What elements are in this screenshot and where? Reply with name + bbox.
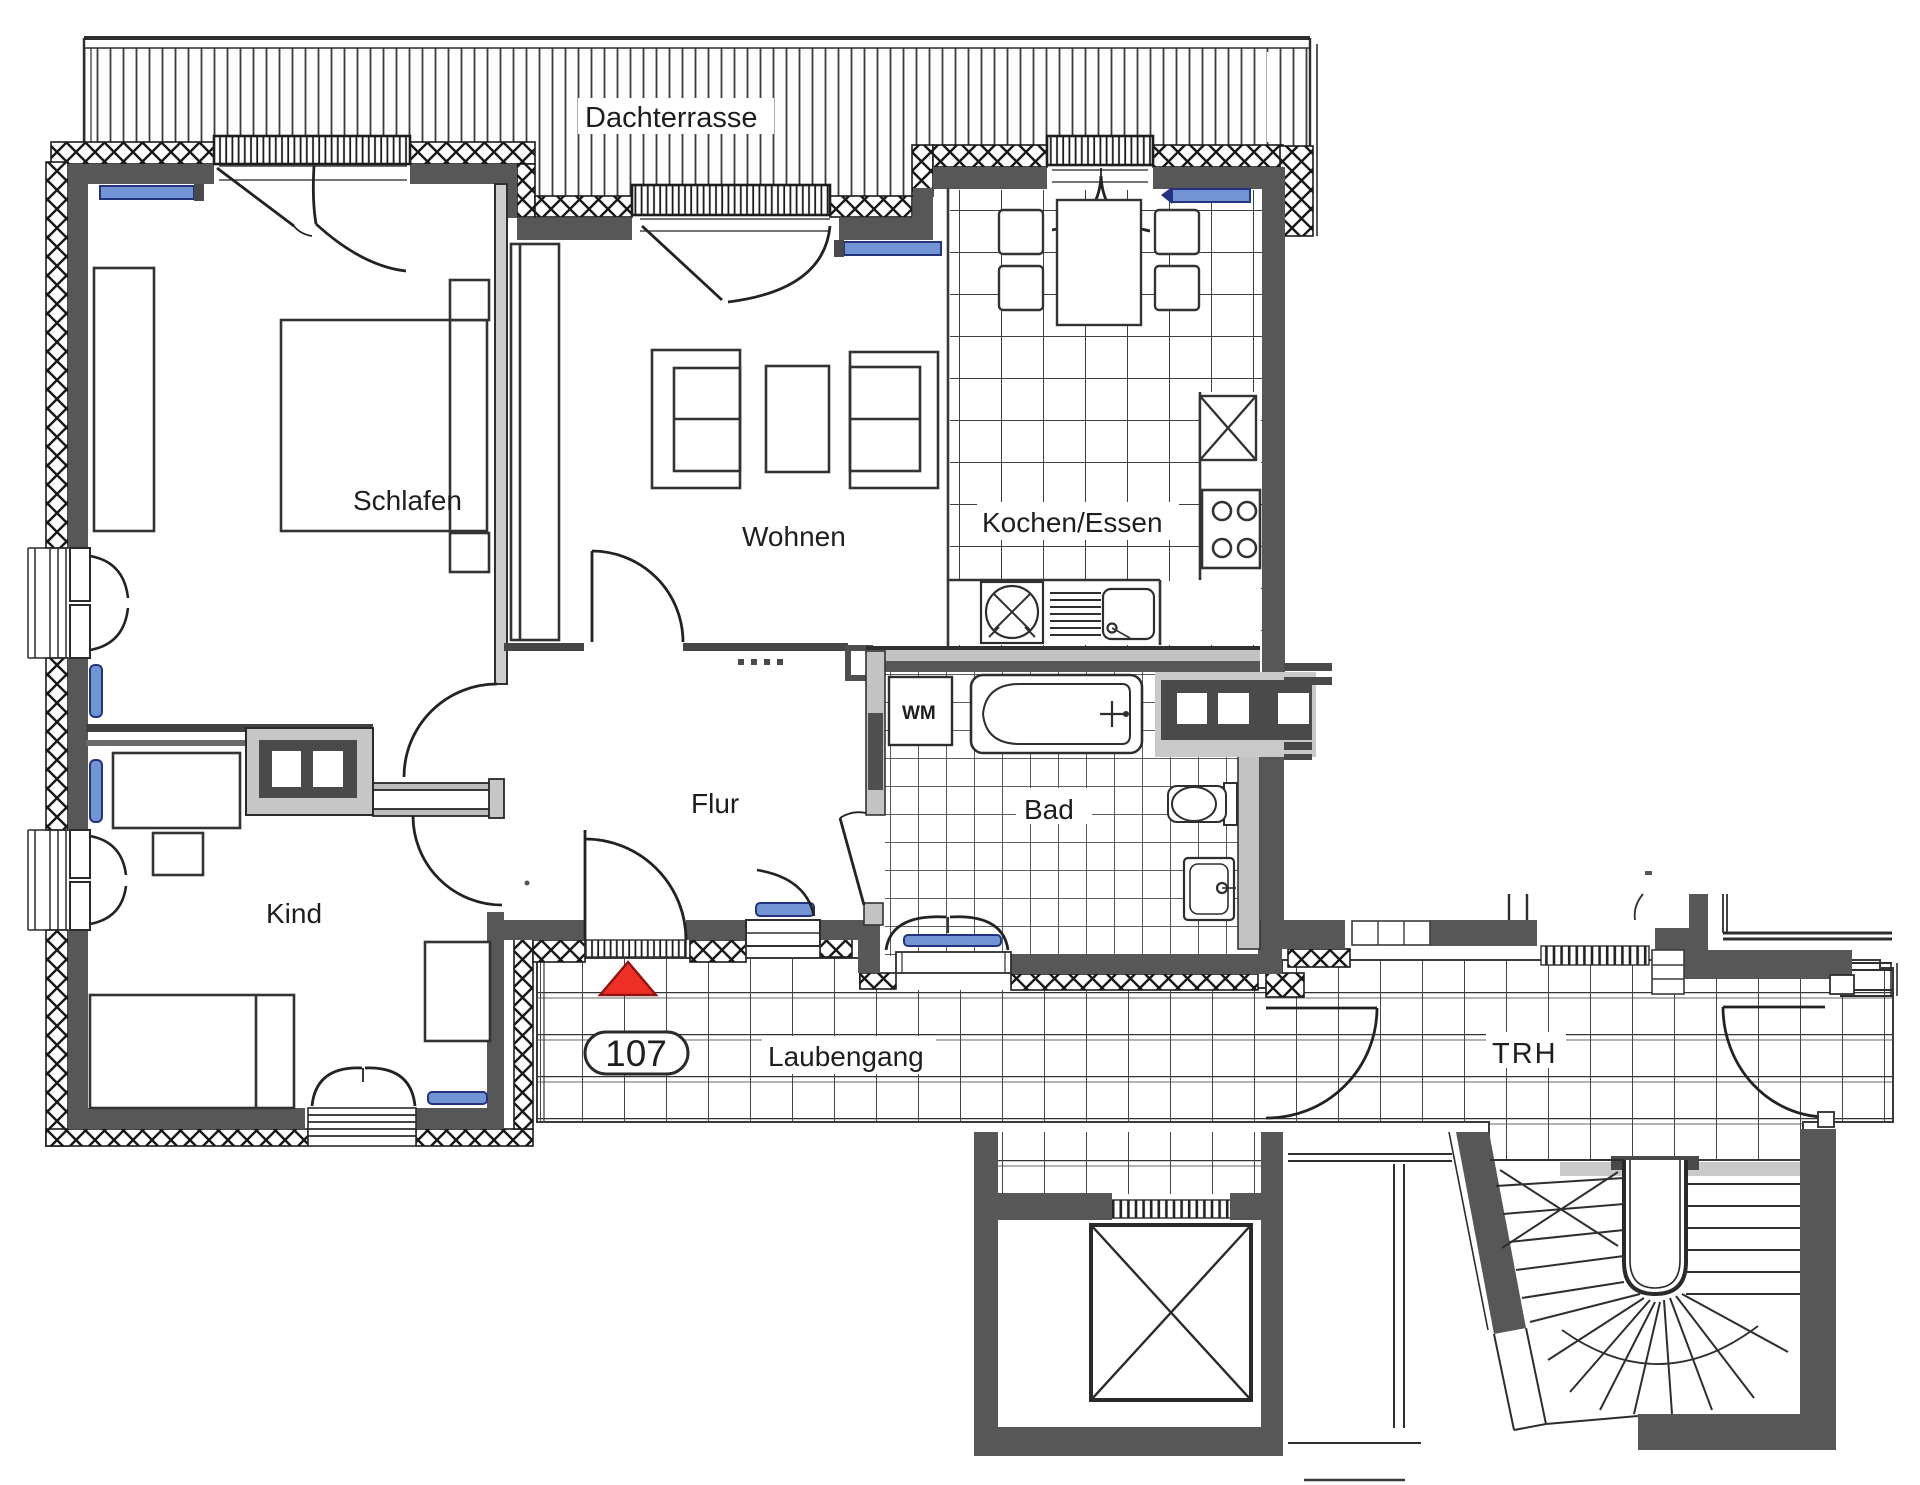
svg-text:Laubengang: Laubengang: [768, 1041, 924, 1072]
svg-text:Dachterrasse: Dachterrasse: [585, 102, 757, 134]
svg-text:Schlafen: Schlafen: [353, 485, 462, 516]
svg-text:Flur: Flur: [691, 788, 739, 819]
svg-text:TRH: TRH: [1492, 1038, 1558, 1070]
svg-text:Bad: Bad: [1024, 794, 1074, 825]
svg-text:WM: WM: [902, 703, 936, 724]
svg-text:Wohnen: Wohnen: [742, 521, 846, 552]
svg-text:Kind: Kind: [266, 898, 322, 929]
svg-text:107: 107: [605, 1033, 667, 1074]
svg-text:Kochen/Essen: Kochen/Essen: [982, 507, 1163, 538]
